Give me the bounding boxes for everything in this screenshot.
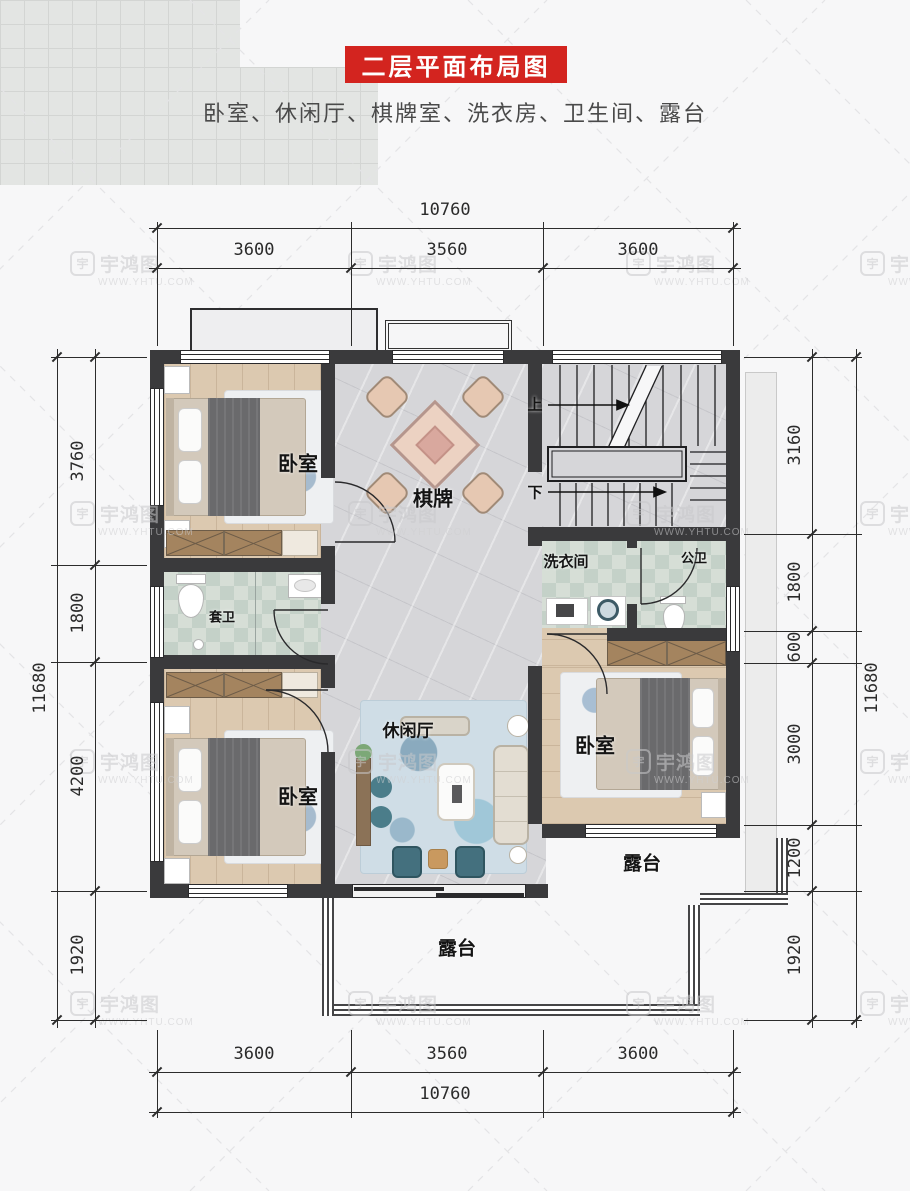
bed-headboard [166,738,174,856]
terrace-railing [322,1004,700,1016]
wall [627,541,637,548]
floor-plan-page: 二层平面布局图 卧室、休闲厅、棋牌室、洗衣房、卫生间、露台 [0,0,910,1191]
nightstand [701,792,726,818]
sofa [493,745,529,845]
wall [150,655,335,669]
sliding-door-leaf [354,887,444,891]
pillow [178,460,202,504]
terrace-railing [700,893,788,905]
room-label-ensuite-bath: 套卫 [209,607,235,626]
bath-divider [255,572,256,655]
armchair [392,846,422,878]
wardrobe [166,530,282,556]
wardrobe [607,640,726,666]
room-label-bedroom2: 卧室 [278,781,318,810]
bed-blanket [208,738,260,856]
armchair [455,846,485,878]
pillow [178,408,202,452]
sink-basin [294,579,316,592]
wall [627,604,637,628]
window [585,824,717,838]
wall [321,546,335,604]
pillow [692,736,714,776]
window [552,350,722,364]
cabinet [282,672,318,698]
window [150,388,164,506]
toilet-icon [660,596,686,604]
window [150,702,164,862]
wall [321,669,335,688]
wall [321,752,335,884]
room-label-bedroom3: 卧室 [575,730,615,759]
bed-headboard [166,398,174,516]
room-label-laundry: 洗衣间 [543,551,588,572]
side-table [507,715,529,737]
room-label-public-bath: 公卫 [681,548,707,567]
wall [542,527,740,541]
room-label-leisure: 休闲厅 [383,717,434,742]
washing-machine-drum [597,599,619,621]
title-banner: 二层平面布局图 [345,46,567,83]
window [726,586,740,652]
bed-blanket [208,398,260,516]
shower-drain-icon [193,639,204,650]
terrace-railing [322,898,334,1016]
stool [428,849,448,869]
pillow [178,748,202,792]
bed-blanket [640,678,690,790]
stair-label-down: 下 [527,482,542,503]
window [392,350,504,364]
toilet-icon [176,574,206,584]
plant [355,744,372,761]
room-label-terrace-right: 露台 [623,849,661,876]
wall [150,558,335,572]
pouf [370,806,392,828]
wall [528,364,542,472]
terrace-railing [688,905,700,1016]
roof-awning-center [385,320,512,352]
page-title: 二层平面布局图 [362,47,551,82]
pillow [692,688,714,728]
nightstand [164,366,190,394]
room-label-bedroom1: 卧室 [278,448,318,477]
bed-headboard [718,678,726,790]
window [180,350,330,364]
wall [528,527,542,546]
page-subtitle: 卧室、休闲厅、棋牌室、洗衣房、卫生间、露台 [0,96,910,128]
laundry-sink [556,604,574,617]
pillow [178,800,202,844]
cabinet [282,530,318,556]
side-table [509,846,527,864]
pouf [370,776,392,798]
sliding-door-leaf [436,893,524,897]
wall [528,666,542,824]
window [188,884,288,898]
stairhall-floor [542,364,726,527]
roof-eave-right [745,372,777,900]
wardrobe [166,672,282,698]
room-label-terrace-bottom: 露台 [438,934,476,961]
window [150,586,164,658]
wall [607,628,740,641]
console-table [356,758,371,846]
room-label-chess: 棋牌 [413,483,453,512]
nightstand [164,858,190,884]
nightstand [164,706,190,734]
wall [321,364,335,478]
roof-awning-left [190,308,378,352]
coffee-table-decor [452,785,462,803]
stair-label-up: 上 [527,394,542,415]
